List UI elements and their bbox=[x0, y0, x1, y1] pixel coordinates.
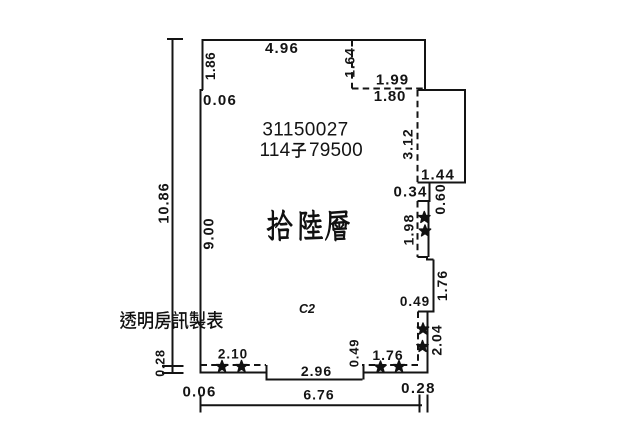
svg-text:1.86: 1.86 bbox=[203, 52, 218, 80]
svg-text:31150027: 31150027 bbox=[262, 119, 348, 140]
svg-text:6.76: 6.76 bbox=[303, 387, 334, 403]
svg-text:4.96: 4.96 bbox=[265, 40, 299, 57]
svg-text:0.06: 0.06 bbox=[183, 383, 217, 400]
svg-text:114: 114 bbox=[260, 140, 291, 161]
svg-text:C2: C2 bbox=[299, 302, 315, 316]
svg-text:79500: 79500 bbox=[309, 140, 363, 161]
svg-text:1.76: 1.76 bbox=[372, 347, 403, 363]
svg-text:0.34: 0.34 bbox=[394, 183, 428, 200]
svg-text:2.10: 2.10 bbox=[218, 346, 248, 361]
svg-text:1.98: 1.98 bbox=[401, 213, 417, 245]
svg-text:0.06: 0.06 bbox=[203, 92, 237, 109]
svg-text:1.64: 1.64 bbox=[342, 47, 358, 77]
svg-text:10.86: 10.86 bbox=[157, 182, 173, 223]
svg-text:9.00: 9.00 bbox=[202, 217, 218, 249]
svg-text:1.99: 1.99 bbox=[376, 71, 409, 88]
svg-text:0.49: 0.49 bbox=[347, 339, 362, 368]
svg-text:0.28: 0.28 bbox=[401, 380, 436, 397]
svg-text:2.04: 2.04 bbox=[429, 324, 445, 355]
svg-text:2.96: 2.96 bbox=[301, 363, 332, 379]
svg-text:0.28: 0.28 bbox=[154, 349, 168, 377]
svg-text:0.49: 0.49 bbox=[400, 294, 430, 309]
svg-text:1.44: 1.44 bbox=[421, 166, 455, 183]
svg-text:1.80: 1.80 bbox=[374, 88, 406, 105]
svg-text:0.60: 0.60 bbox=[432, 183, 448, 214]
svg-text:1.76: 1.76 bbox=[434, 270, 450, 301]
svg-text:3.12: 3.12 bbox=[400, 128, 416, 159]
